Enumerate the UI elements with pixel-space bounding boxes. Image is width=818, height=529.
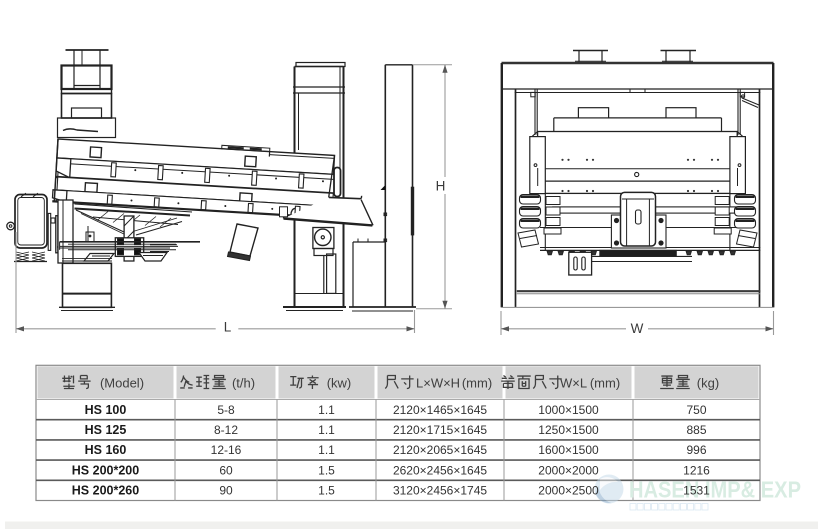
svg-text:1250×1500: 1250×1500 xyxy=(538,423,599,437)
svg-text:8-12: 8-12 xyxy=(214,423,238,437)
svg-text:1.1: 1.1 xyxy=(318,403,335,417)
svg-text:3120×2456×1745: 3120×2456×1745 xyxy=(393,484,487,498)
svg-text:W: W xyxy=(631,321,644,336)
svg-text:2120×2065×1645: 2120×2065×1645 xyxy=(393,443,487,457)
svg-text:2120×1715×1645: 2120×1715×1645 xyxy=(393,423,487,437)
svg-text:HASEN IMP& EXP: HASEN IMP& EXP xyxy=(629,477,801,503)
svg-text:2120×1465×1645: 2120×1465×1645 xyxy=(393,403,487,417)
svg-text:(mm): (mm) xyxy=(590,376,620,391)
svg-text:2000×2500: 2000×2500 xyxy=(538,484,599,498)
svg-text:HS 200*200: HS 200*200 xyxy=(72,463,139,477)
svg-text:2620×2456×1645: 2620×2456×1645 xyxy=(393,463,487,477)
svg-text:5-8: 5-8 xyxy=(217,403,235,417)
svg-text:1.5: 1.5 xyxy=(318,484,335,498)
svg-text:(kg): (kg) xyxy=(697,376,719,391)
svg-text:(mm): (mm) xyxy=(462,376,492,391)
svg-text:L: L xyxy=(224,320,232,335)
svg-text:996: 996 xyxy=(686,443,706,457)
svg-text:W×L: W×L xyxy=(560,376,587,391)
svg-text:HS 100: HS 100 xyxy=(85,403,127,417)
svg-text:12-16: 12-16 xyxy=(211,443,242,457)
svg-text:1531: 1531 xyxy=(683,484,710,498)
svg-text:60: 60 xyxy=(219,463,233,477)
svg-text:1600×1500: 1600×1500 xyxy=(538,443,599,457)
svg-text:HS 125: HS 125 xyxy=(85,423,127,437)
svg-text:1000×1500: 1000×1500 xyxy=(538,403,599,417)
svg-text:(kw): (kw) xyxy=(327,376,352,391)
svg-text:750: 750 xyxy=(686,403,706,417)
svg-text:1216: 1216 xyxy=(683,463,710,477)
svg-text:HS 160: HS 160 xyxy=(85,443,127,457)
svg-text:1.1: 1.1 xyxy=(318,443,335,457)
svg-text:2000×2000: 2000×2000 xyxy=(538,463,599,477)
svg-text:1.5: 1.5 xyxy=(318,463,335,477)
svg-text:L×W×H: L×W×H xyxy=(416,376,460,391)
svg-text:(t/h): (t/h) xyxy=(232,376,255,391)
svg-text:HS 200*260: HS 200*260 xyxy=(72,484,139,498)
svg-text:1.1: 1.1 xyxy=(318,423,335,437)
svg-text:90: 90 xyxy=(219,484,233,498)
svg-text:H: H xyxy=(436,179,446,194)
svg-text:885: 885 xyxy=(686,423,706,437)
svg-text:(Model): (Model) xyxy=(100,376,144,391)
